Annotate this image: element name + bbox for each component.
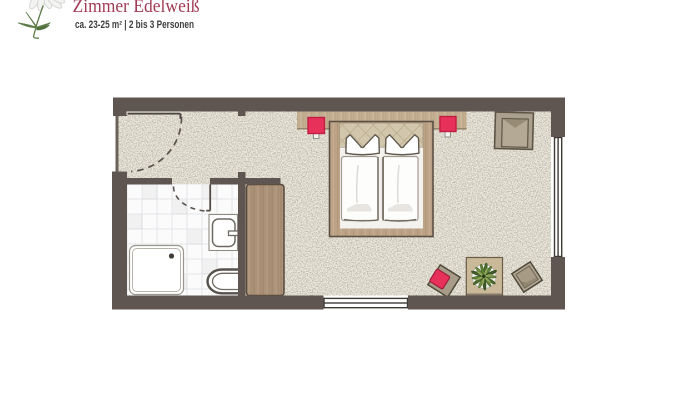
svg-text:ca. 23-25 m² | 2 bis 3 Persone: ca. 23-25 m² | 2 bis 3 Personen <box>75 19 194 31</box>
svg-text:Zimmer Edelweiß: Zimmer Edelweiß <box>73 0 200 17</box>
